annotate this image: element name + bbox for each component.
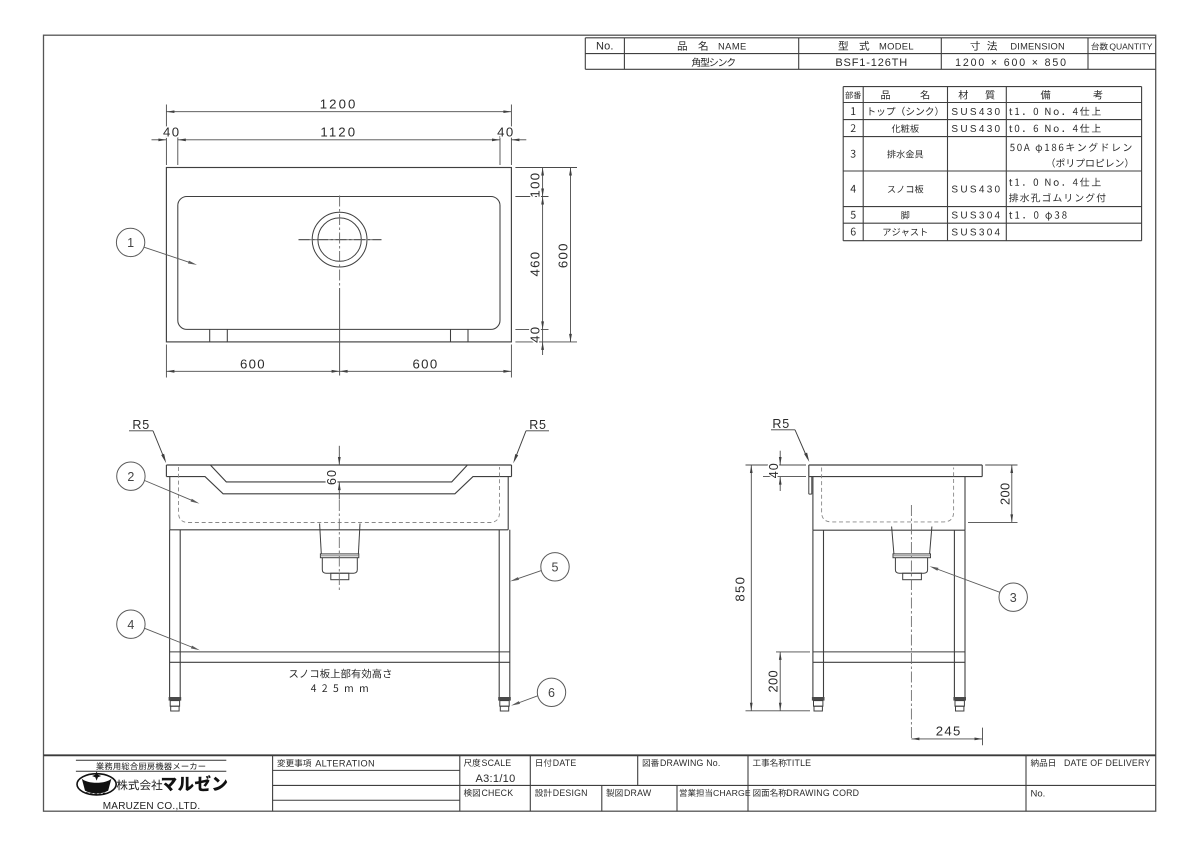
svg-text:DATE OF DELIVERY: DATE OF DELIVERY (1064, 758, 1150, 768)
svg-text:4: 4 (127, 618, 134, 632)
svg-text:3: 3 (1010, 591, 1017, 605)
svg-text:460: 460 (527, 251, 542, 277)
svg-text:40: 40 (497, 124, 515, 139)
svg-text:60: 60 (325, 469, 339, 485)
svg-text:200: 200 (998, 482, 1013, 505)
svg-text:SUS430: SUS430 (951, 107, 1002, 118)
svg-text:1200: 1200 (320, 97, 358, 112)
svg-text:BSF1-126TH: BSF1-126TH (835, 57, 908, 69)
svg-text:TITLE: TITLE (786, 758, 811, 768)
svg-text:R5: R5 (529, 418, 547, 432)
svg-text:CHARGE: CHARGE (713, 788, 751, 798)
svg-text:600: 600 (413, 356, 439, 371)
svg-text:SUS430: SUS430 (951, 185, 1002, 196)
svg-text:1: 1 (127, 236, 134, 250)
svg-text:40: 40 (527, 326, 542, 343)
svg-text:SUS430: SUS430 (951, 124, 1002, 135)
svg-text:245: 245 (936, 724, 962, 739)
svg-text:DIMENSION: DIMENSION (1010, 42, 1065, 52)
svg-text:DRAWING No.: DRAWING No. (660, 758, 721, 768)
svg-text:MODEL: MODEL (879, 41, 914, 52)
svg-text:100: 100 (527, 172, 542, 198)
svg-text:200: 200 (765, 670, 780, 693)
svg-text:QUANTITY: QUANTITY (1109, 42, 1152, 52)
svg-text:SUS304: SUS304 (951, 227, 1002, 238)
svg-text:2: 2 (127, 470, 134, 484)
svg-text:600: 600 (556, 242, 571, 268)
svg-text:5: 5 (552, 560, 559, 574)
svg-text:SCALE: SCALE (482, 758, 512, 768)
svg-text:SUS304: SUS304 (951, 211, 1002, 222)
svg-text:600: 600 (240, 356, 266, 371)
svg-text:40: 40 (767, 462, 781, 478)
svg-text:MARUZEN CO.,LTD.: MARUZEN CO.,LTD. (103, 801, 201, 812)
svg-text:6: 6 (548, 686, 555, 700)
svg-text:40: 40 (163, 124, 181, 139)
svg-text:1120: 1120 (320, 125, 357, 140)
svg-text:A3:1/10: A3:1/10 (475, 773, 515, 785)
svg-text:1200 × 600 × 850: 1200 × 600 × 850 (955, 57, 1068, 69)
svg-text:DRAW: DRAW (624, 788, 652, 798)
svg-text:850: 850 (733, 576, 748, 602)
svg-text:NAME: NAME (718, 41, 747, 52)
svg-text:ALTERATION: ALTERATION (315, 758, 375, 768)
svg-text:R5: R5 (132, 418, 150, 432)
svg-text:R5: R5 (772, 417, 790, 431)
svg-text:CHECK: CHECK (482, 788, 514, 798)
svg-text:No.: No. (1031, 789, 1046, 800)
svg-text:DESIGN: DESIGN (553, 788, 588, 798)
svg-text:DRAWING CORD: DRAWING CORD (786, 788, 859, 798)
svg-text:DATE: DATE (553, 758, 577, 768)
svg-text:No.: No. (596, 41, 614, 53)
